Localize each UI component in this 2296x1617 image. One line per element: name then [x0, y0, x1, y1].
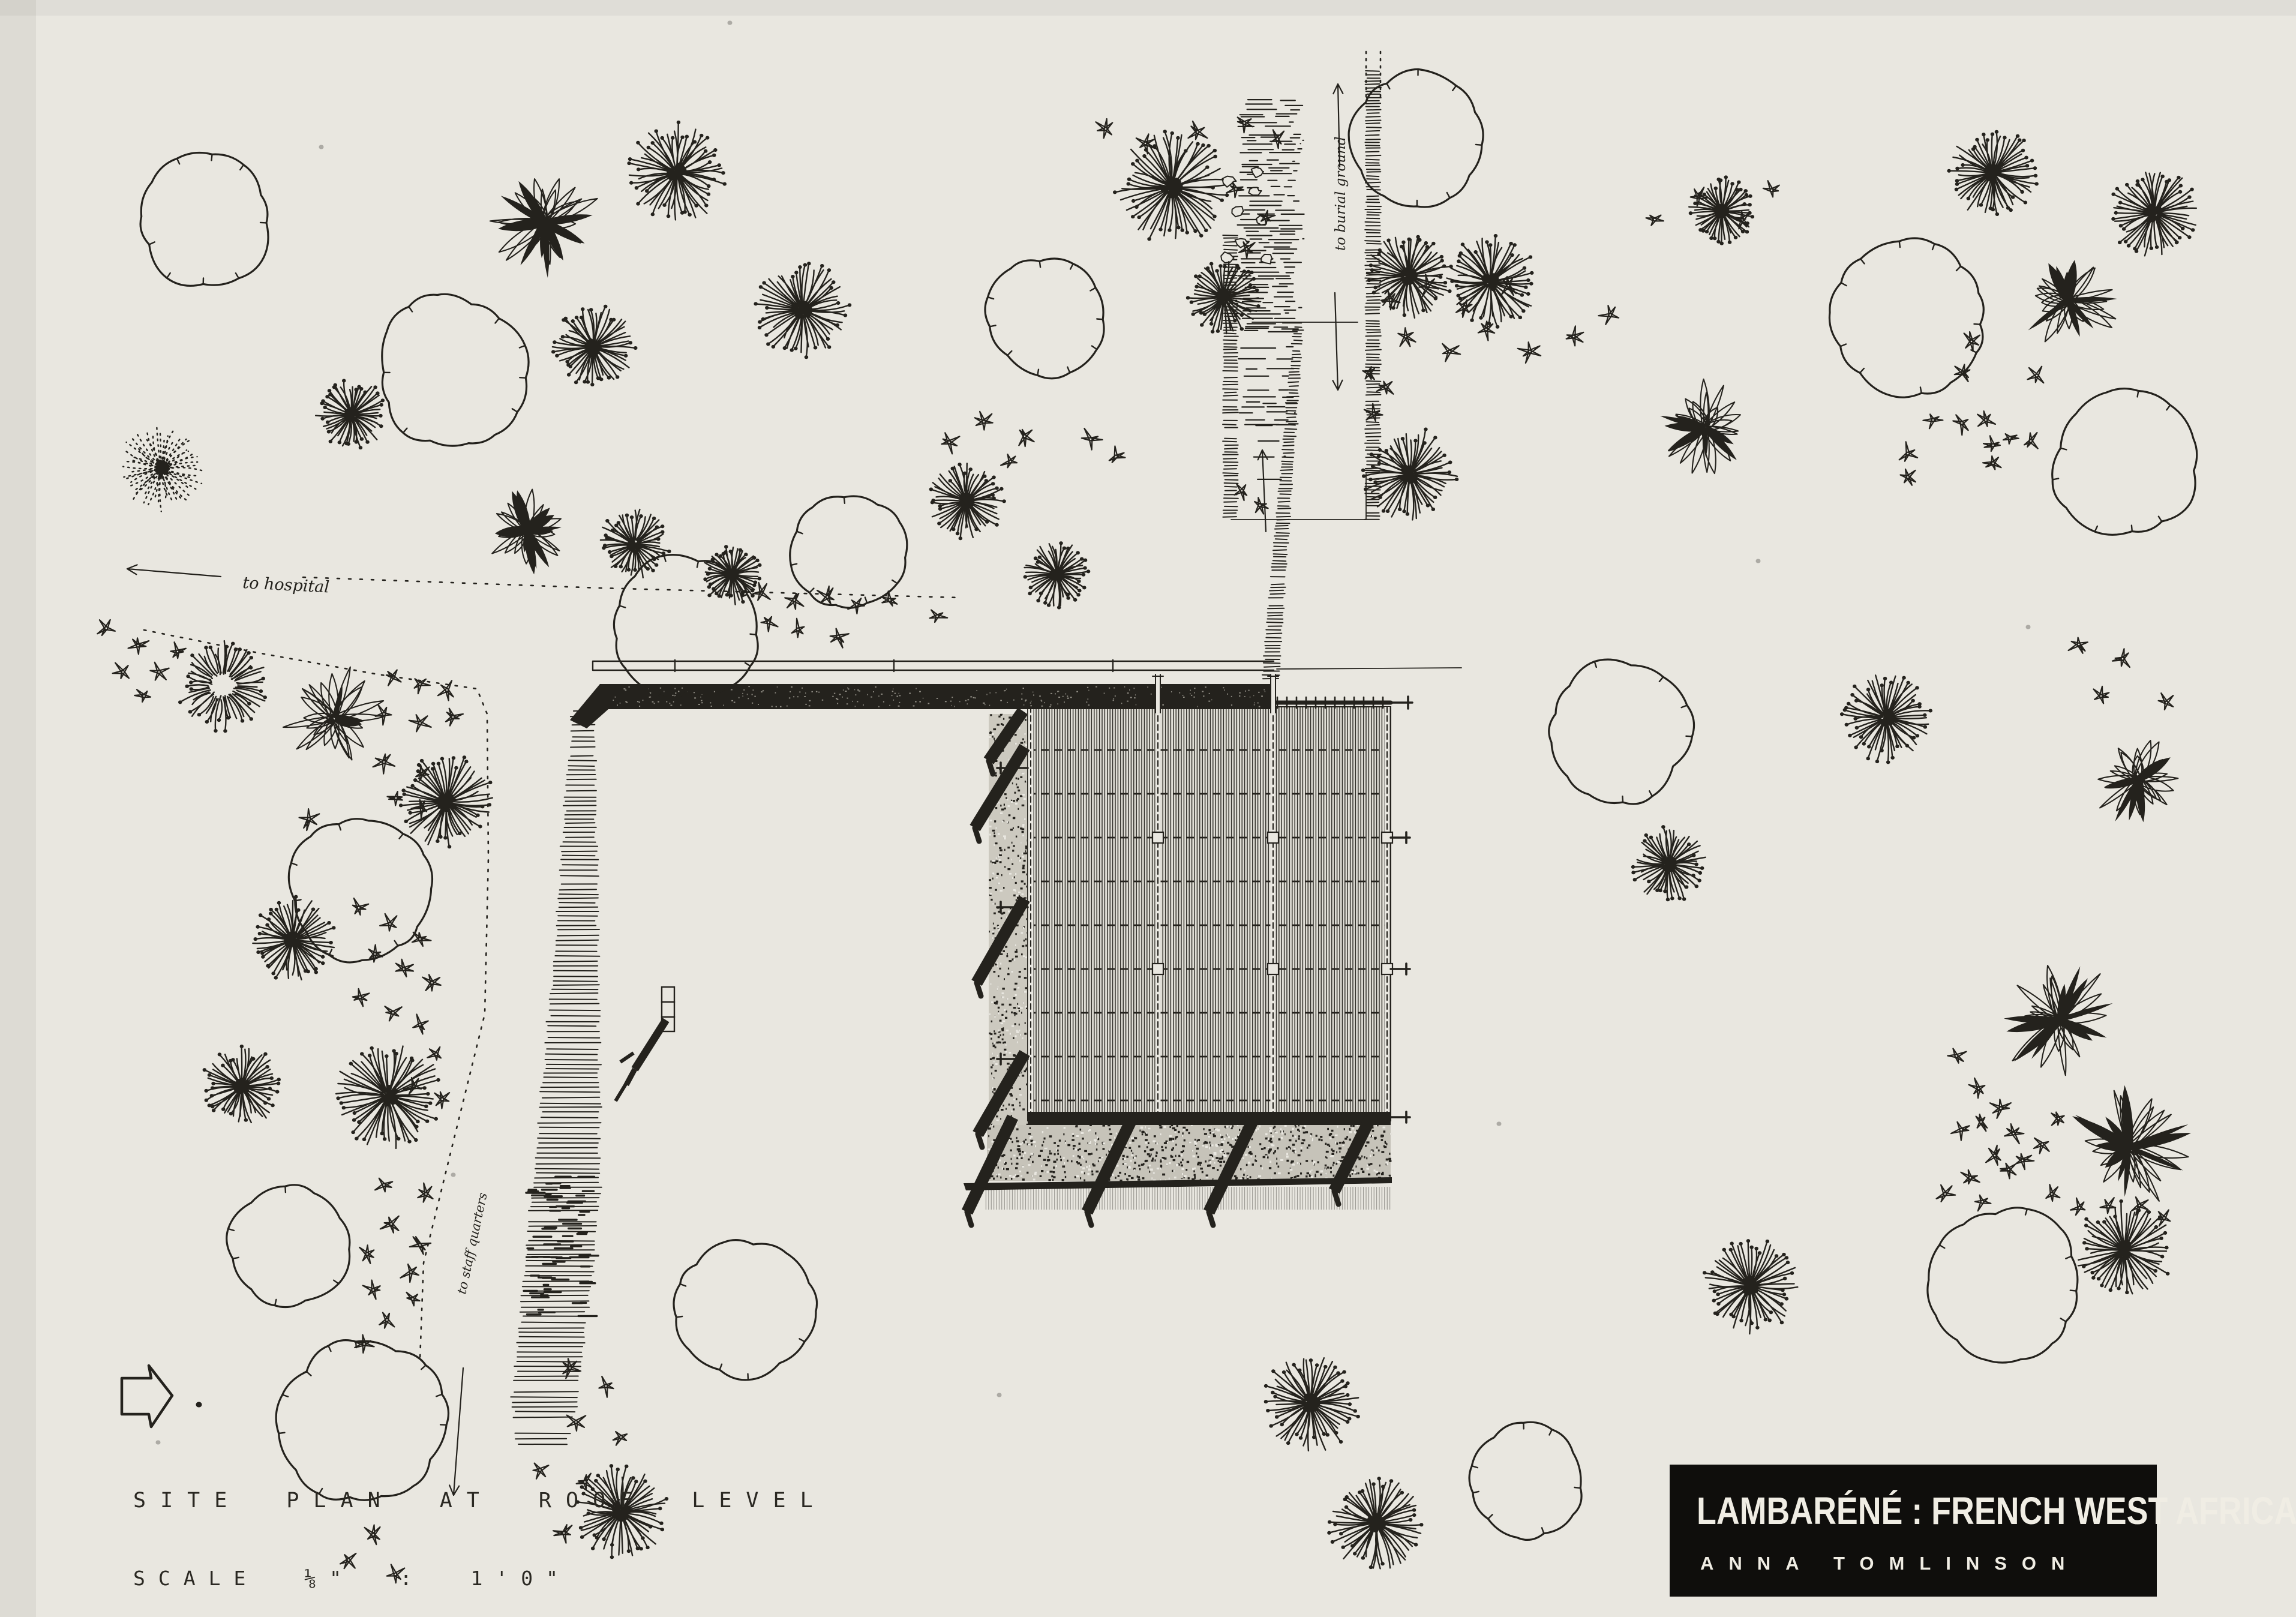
site-plan-sheet: to hospital to burial ground to staff qu…: [0, 0, 2296, 1617]
tree-palm-core: [1883, 711, 1893, 724]
roof-corrugation: [1028, 707, 1391, 1121]
roof-connector-node: [1268, 964, 1278, 974]
walkway-post-gap: [1155, 674, 1160, 713]
tree-palm-core: [1052, 569, 1063, 578]
walkway-post-gap: [1271, 674, 1275, 713]
walkway-roof-bar: [607, 684, 1274, 709]
kiosk-cell: [662, 987, 674, 1002]
pebble: [1261, 254, 1272, 264]
kiosk-cell: [662, 1002, 674, 1017]
edge-shading-top: [0, 0, 2296, 16]
tree-palm-core: [1305, 1396, 1318, 1411]
tree-palm-core: [727, 571, 737, 579]
label-to-burial-ground: to burial ground: [1333, 136, 1349, 251]
tree-palm-core: [1369, 1516, 1383, 1531]
title-block-author: ANNA TOMLINSON: [1700, 1553, 2079, 1574]
caption-title: SITE PLAN AT ROOF LEVEL: [133, 1489, 827, 1513]
roof-edge-beam: [1028, 1112, 1391, 1125]
terrace-edge-hatch: [984, 1187, 1391, 1210]
tree-palm-core: [159, 462, 168, 475]
site-plan-canvas: to hospital to burial ground to staff qu…: [0, 0, 2296, 1617]
roof-connector-node: [1152, 964, 1163, 974]
tree-palm-core: [587, 341, 599, 353]
caption-scale: SCALE ⅛" : 1'0": [133, 1567, 571, 1590]
edge-shading-left: [0, 0, 36, 1617]
roof-connector-node: [1152, 832, 1163, 843]
tree-palm-core: [1664, 858, 1674, 870]
tree-palm-core: [1716, 206, 1727, 214]
title-block-title: LAMBARÉNÉ : FRENCH WEST AFRICA: [1697, 1489, 2296, 1533]
roof-connector-node: [1268, 832, 1278, 843]
